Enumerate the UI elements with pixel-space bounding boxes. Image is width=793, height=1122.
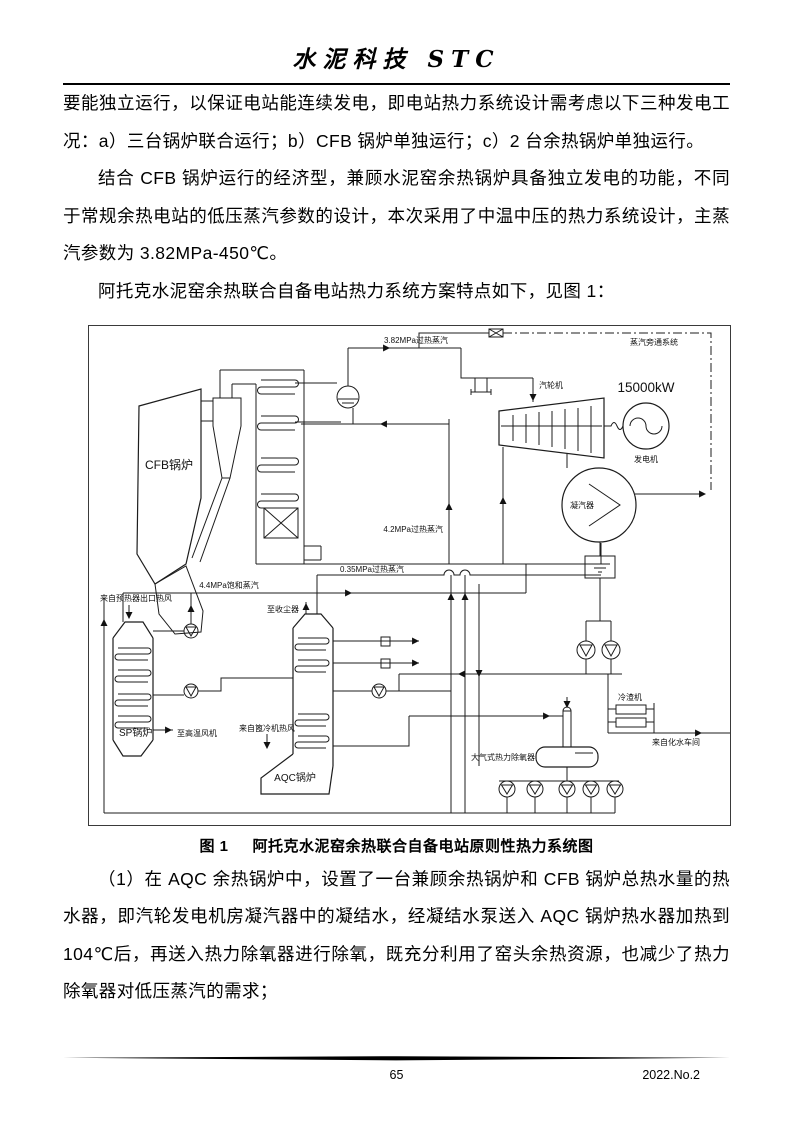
generator-power-label: 15000kW: [617, 380, 674, 395]
from-water-plant-label: 来自化水车间: [652, 737, 700, 747]
figure-1: CFB锅炉: [63, 325, 730, 856]
condenser-label: 凝汽器: [570, 500, 594, 510]
diagram-svg: CFB锅炉: [89, 326, 730, 825]
steam-headers: [123, 419, 601, 622]
footer-rule: [63, 1056, 730, 1061]
condensate-pumps: [399, 578, 622, 703]
thermal-system-diagram: CFB锅炉: [88, 325, 731, 826]
page-footer: 65 2022.No.2: [63, 1048, 730, 1086]
paragraph-4: （1）在 AQC 余热锅炉中，设置了一台兼顾余热锅炉和 CFB 锅炉总热水量的热…: [63, 861, 730, 1011]
turbine-label: 汽轮机: [539, 380, 563, 390]
aqc-boiler-label: AQC锅炉: [274, 772, 316, 784]
slag-cooler-label: 冷渣机: [618, 692, 642, 702]
page-number: 65: [63, 1068, 730, 1082]
journal-title: 水泥科技 STC: [63, 0, 730, 76]
main-steam-pipes: [301, 329, 711, 490]
to-dust-collector-label: 至收尘器: [267, 604, 299, 614]
paragraph-2: 结合 CFB 锅炉运行的经济型，兼顾水泥窑余热锅炉具备独立发电的功能，不同于常规…: [63, 160, 730, 273]
page-content: 水泥科技 STC 要能独立运行，以保证电站能连续发电，即电站热力系统设计需考虑以…: [0, 0, 793, 1011]
body-text-after-figure: （1）在 AQC 余热锅炉中，设置了一台兼顾余热锅炉和 CFB 锅炉总热水量的热…: [63, 861, 730, 1011]
backpass-shape: [256, 370, 321, 564]
main-steam-label: 3.82MPa过热蒸汽: [384, 335, 448, 345]
turbine-shape: [499, 398, 623, 458]
slag-cooler-shape: [608, 703, 730, 733]
air-preheater-icon: [264, 508, 298, 538]
aqc-boiler-shape: [261, 602, 333, 794]
lp-steam-label: 0.35MPa过热蒸汽: [340, 564, 404, 574]
figure-caption-title: 阿托克水泥窑余热联合自备电站原则性热力系统图: [253, 838, 594, 855]
figure-caption-number: 图 1: [199, 838, 228, 855]
sp-boiler-label: SP锅炉: [119, 727, 152, 739]
paragraph-3: 阿托克水泥窑余热联合自备电站热力系统方案特点如下，见图 1：: [63, 273, 730, 311]
sat-steam-label: 4.4MPa饱和蒸汽: [199, 580, 259, 590]
body-text: 要能独立运行，以保证电站能连续发电，即电站热力系统设计需考虑以下三种发电工况：a…: [63, 85, 730, 311]
condenser-shape: [562, 454, 705, 578]
mp-steam-label: 4.2MPa过热蒸汽: [383, 524, 443, 534]
steam-drum-shape: [337, 348, 359, 424]
cyclone-shape: [213, 398, 241, 478]
issue-number: 2022.No.2: [642, 1068, 700, 1082]
footer-row: 65 2022.No.2: [63, 1068, 730, 1086]
flow-arrows: [104, 348, 701, 748]
bypass-system-label: 蒸汽旁通系统: [630, 337, 678, 347]
paragraph-1: 要能独立运行，以保证电站能连续发电，即电站热力系统设计需考虑以下三种发电工况：a…: [63, 85, 730, 160]
generator-shape: [623, 403, 669, 449]
cfb-boiler-label: CFB锅炉: [145, 457, 193, 472]
to-ht-fan-label: 至高温风机: [177, 728, 217, 738]
generator-label: 发电机: [634, 454, 658, 464]
deaerator-label: 大气式热力除氧器: [471, 752, 535, 762]
journal-page: 水泥科技 STC 要能独立运行，以保证电站能连续发电，即电站热力系统设计需考虑以…: [0, 0, 793, 1122]
from-grate-cooler-label: 来自篦冷机热风: [239, 723, 295, 733]
aqc-outlet-pipes: [333, 575, 479, 813]
feedwater-pumps: [104, 598, 623, 813]
figure-caption: 图 1阿托克水泥窑余热联合自备电站原则性热力系统图: [63, 835, 730, 856]
from-preheater-label: 来自预热器出口热风: [100, 593, 172, 603]
